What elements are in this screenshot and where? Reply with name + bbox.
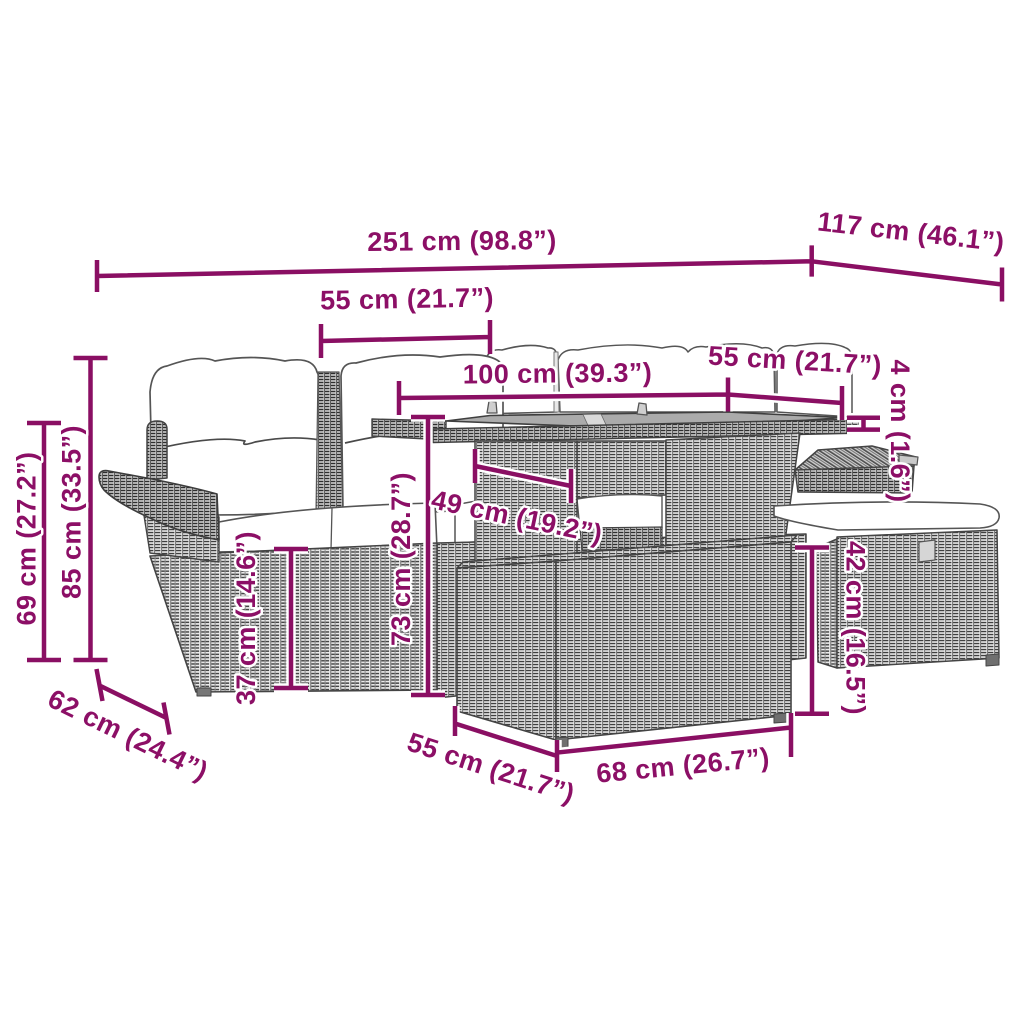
svg-text:73 cm (28.7”): 73 cm (28.7”) [386, 472, 416, 646]
svg-text:85 cm (33.5”): 85 cm (33.5”) [57, 425, 87, 599]
svg-text:4 cm (1.6”): 4 cm (1.6”) [885, 359, 915, 502]
svg-text:100 cm (39.3”): 100 cm (39.3”) [463, 358, 653, 390]
svg-text:69 cm (27.2”): 69 cm (27.2”) [12, 452, 42, 626]
svg-text:42 cm (16.5”): 42 cm (16.5”) [841, 541, 871, 715]
svg-text:251 cm (98.8”): 251 cm (98.8”) [367, 225, 557, 257]
svg-text:55 cm (21.7”): 55 cm (21.7”) [320, 282, 494, 315]
svg-text:37 cm (14.6”): 37 cm (14.6”) [231, 531, 261, 705]
